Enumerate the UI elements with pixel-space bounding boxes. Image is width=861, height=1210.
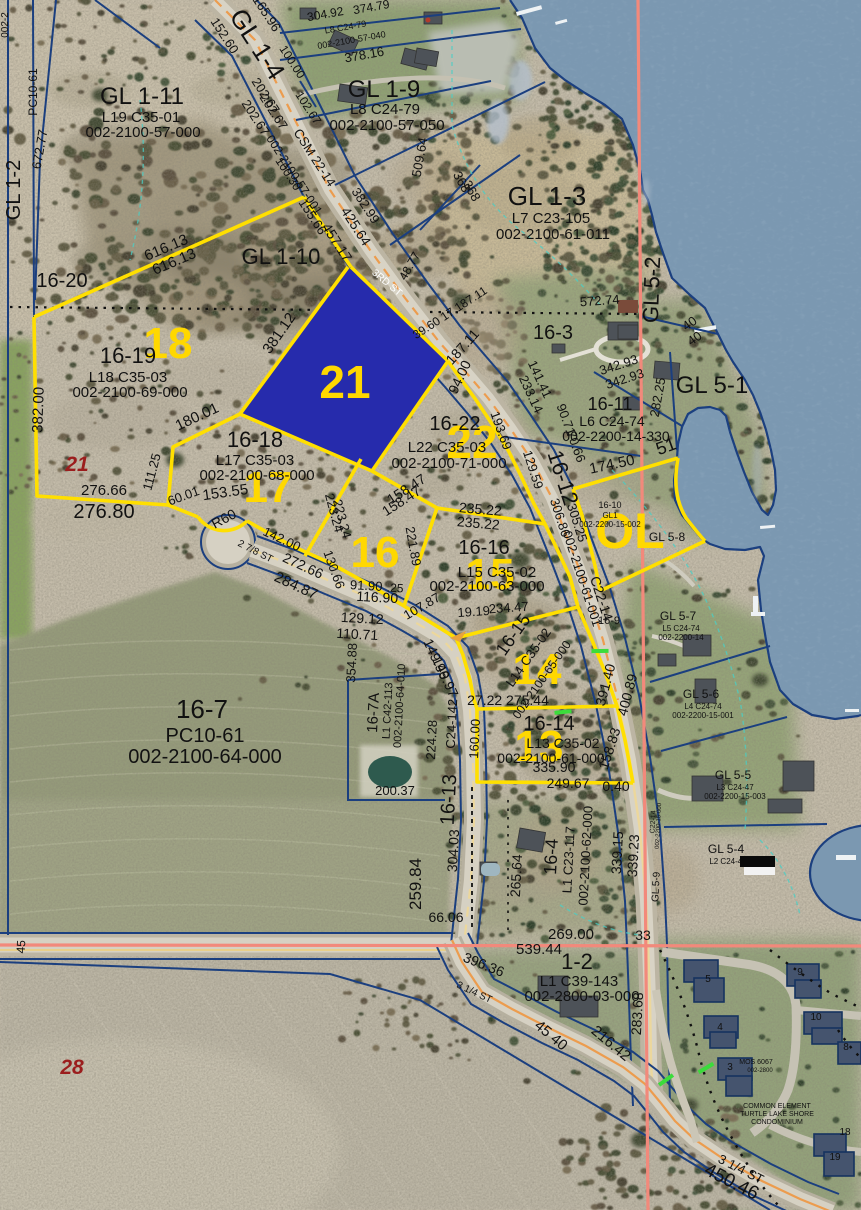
svg-text:21: 21 <box>319 356 370 408</box>
svg-text:27.22 275.44: 27.22 275.44 <box>467 692 549 708</box>
svg-text:L4 C24-74: L4 C24-74 <box>684 702 722 711</box>
svg-text:339.23: 339.23 <box>624 834 642 878</box>
svg-text:382.00: 382.00 <box>29 387 48 433</box>
svg-text:110.71: 110.71 <box>336 625 379 643</box>
svg-text:335.90: 335.90 <box>533 759 576 775</box>
svg-text:CONDOMINIUM: CONDOMINIUM <box>751 1119 803 1126</box>
svg-text:L8 C24-79: L8 C24-79 <box>350 101 420 118</box>
svg-text:19: 19 <box>829 1152 841 1163</box>
svg-text:GL 5-9: GL 5-9 <box>650 871 663 902</box>
svg-text:9: 9 <box>797 967 803 978</box>
svg-text:116.90: 116.90 <box>356 588 399 606</box>
svg-text:8: 8 <box>843 1042 849 1053</box>
svg-text:GL 1-11: GL 1-11 <box>100 83 184 110</box>
svg-text:16: 16 <box>351 528 400 577</box>
svg-text:0.40: 0.40 <box>602 778 629 794</box>
svg-text:276.66: 276.66 <box>81 482 127 499</box>
svg-text:GL 5-4: GL 5-4 <box>708 842 745 856</box>
svg-text:002-2200-15-001: 002-2200-15-001 <box>672 711 734 720</box>
svg-text:16-11: 16-11 <box>588 394 633 414</box>
svg-text:GL 1-2: GL 1-2 <box>3 160 25 220</box>
svg-text:TURTLE LAKE SHORE: TURTLE LAKE SHORE <box>740 1111 814 1118</box>
svg-text:224.28: 224.28 <box>423 720 440 760</box>
svg-text:GL 5-7: GL 5-7 <box>660 609 697 623</box>
svg-text:16-10: 16-10 <box>598 500 621 510</box>
svg-text:16-22: 16-22 <box>429 413 480 435</box>
svg-text:249.67: 249.67 <box>547 775 590 791</box>
svg-text:5: 5 <box>705 974 711 985</box>
svg-text:002-2800-03-000: 002-2800-03-000 <box>524 988 639 1005</box>
svg-text:3: 3 <box>727 1062 733 1073</box>
svg-text:002-2100-68-000: 002-2100-68-000 <box>199 467 314 484</box>
svg-text:002-2100-71-000: 002-2100-71-000 <box>391 455 506 472</box>
svg-text:GL 1-9: GL 1-9 <box>348 76 420 103</box>
svg-text:276.80: 276.80 <box>73 501 134 523</box>
svg-text:10: 10 <box>810 1012 822 1023</box>
svg-text:200.37: 200.37 <box>375 783 415 798</box>
svg-text:002-2200-14: 002-2200-14 <box>658 633 704 642</box>
svg-text:002-2200-15-003: 002-2200-15-003 <box>704 792 766 801</box>
svg-text:002-2100-64-000: 002-2100-64-000 <box>128 746 281 768</box>
svg-text:PC10-61: PC10-61 <box>166 725 245 747</box>
svg-text:4: 4 <box>717 1022 723 1033</box>
svg-text:354.88: 354.88 <box>343 643 360 683</box>
svg-text:16-18: 16-18 <box>227 427 283 452</box>
svg-text:21: 21 <box>64 453 88 476</box>
svg-text:16-14: 16-14 <box>523 713 574 735</box>
svg-text:GL 5-1: GL 5-1 <box>676 372 748 399</box>
svg-text:45: 45 <box>14 939 29 953</box>
svg-text:002-2200-15-002: 002-2200-15-002 <box>579 520 641 529</box>
svg-text:304.03: 304.03 <box>444 829 462 873</box>
svg-text:129.12: 129.12 <box>340 609 384 627</box>
svg-text:16-20: 16-20 <box>36 270 87 292</box>
svg-text:16-19: 16-19 <box>100 343 156 368</box>
svg-text:L22 C35-03: L22 C35-03 <box>408 439 486 456</box>
svg-text:16-7: 16-7 <box>176 694 228 724</box>
svg-text:265.64: 265.64 <box>507 854 525 898</box>
svg-text:GL1: GL1 <box>602 511 618 520</box>
svg-text:L5 C24-74: L5 C24-74 <box>662 624 700 633</box>
svg-text:283.68: 283.68 <box>628 992 646 1036</box>
svg-text:1-2: 1-2 <box>561 949 593 974</box>
svg-text:572.74: 572.74 <box>579 292 620 310</box>
svg-text:GL 5-2: GL 5-2 <box>638 256 665 323</box>
svg-text:L13 C35-02: L13 C35-02 <box>526 735 599 751</box>
svg-text:18: 18 <box>839 1127 851 1138</box>
svg-text:002-2800: 002-2800 <box>747 1068 773 1074</box>
svg-text:33: 33 <box>635 927 651 943</box>
svg-text:16-16: 16-16 <box>458 537 509 559</box>
svg-text:66.06: 66.06 <box>428 909 463 925</box>
svg-text:16-13: 16-13 <box>437 774 462 826</box>
svg-text:L3 C24-47: L3 C24-47 <box>716 783 754 792</box>
svg-text:COMMON ELEMENT: COMMON ELEMENT <box>743 1103 811 1110</box>
svg-text:259.84: 259.84 <box>406 858 425 910</box>
svg-text:19.19: 19.19 <box>457 603 491 620</box>
svg-text:C24-142: C24-142 <box>443 698 461 749</box>
svg-text:GL 1-3: GL 1-3 <box>508 181 587 211</box>
svg-text:002-2100-69-000: 002-2100-69-000 <box>72 384 187 401</box>
svg-text:PC10-61: PC10-61 <box>26 68 40 116</box>
svg-text:L7 C23-105: L7 C23-105 <box>512 210 590 227</box>
svg-text:002-2100-57-000: 002-2100-57-000 <box>85 124 200 141</box>
svg-text:002-2100-61-011: 002-2100-61-011 <box>496 226 610 243</box>
svg-text:160.00: 160.00 <box>466 719 483 759</box>
svg-text:002-2100-63-000: 002-2100-63-000 <box>429 578 544 595</box>
svg-text:002-2: 002-2 <box>0 12 11 38</box>
svg-text:002-2100-57-050: 002-2100-57-050 <box>329 117 444 134</box>
svg-text:GL 1-10: GL 1-10 <box>242 244 321 269</box>
svg-text:GL 5-6: GL 5-6 <box>683 687 720 701</box>
svg-text:16-4: 16-4 <box>540 838 562 875</box>
svg-text:GL 5-5: GL 5-5 <box>715 768 752 782</box>
svg-text:16-3: 16-3 <box>533 322 573 344</box>
svg-text:GL 5-8: GL 5-8 <box>649 530 686 544</box>
svg-text:L6 C24-74: L6 C24-74 <box>579 413 645 429</box>
svg-text:539.44: 539.44 <box>516 941 562 958</box>
svg-text:MOS 6067: MOS 6067 <box>739 1059 773 1066</box>
svg-text:28: 28 <box>59 1056 84 1079</box>
